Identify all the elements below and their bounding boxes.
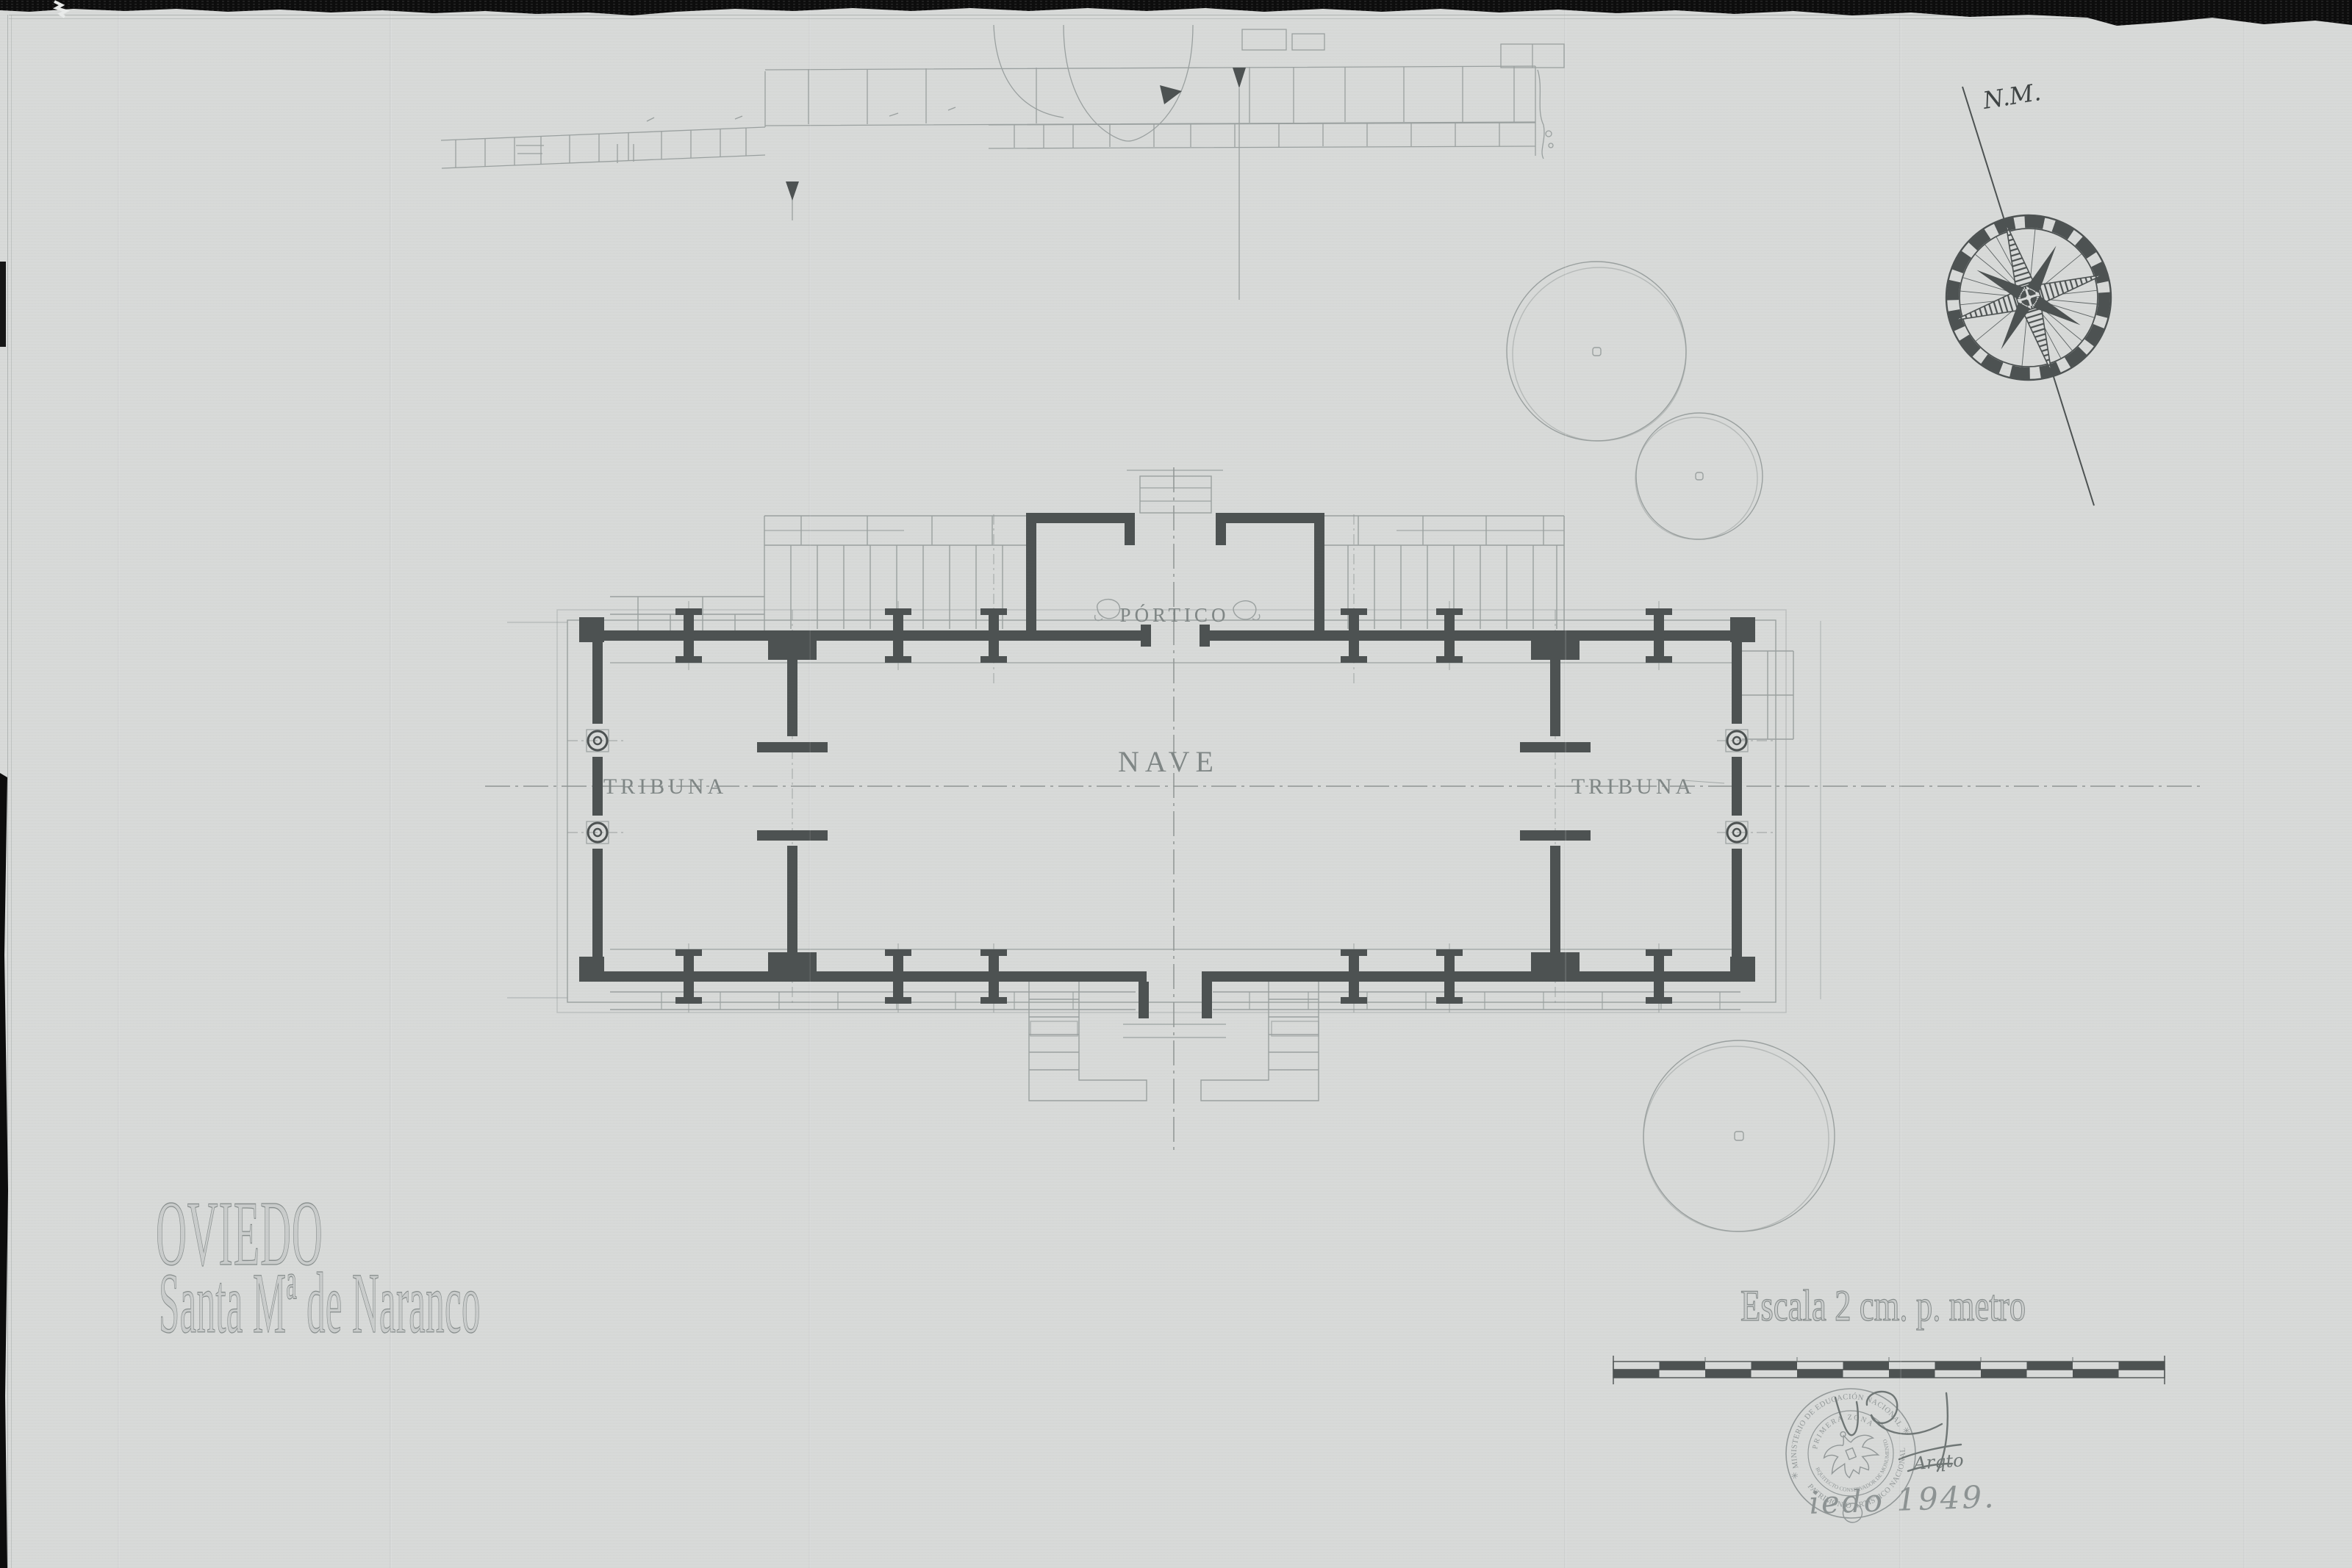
tree-symbol-small [1635,413,1763,539]
tribuna-right-label: TRIBUNA [1571,774,1695,799]
stairs-west [1029,982,1147,1101]
tribuna-left-label: TRIBUNA [603,774,727,799]
signature-place-year: iedo 1949. [1809,1478,1997,1521]
stamp-separator-left: ✳ [1790,1470,1801,1482]
compass-star [1932,201,2126,395]
scale-caption: Escala 2 cm. p. metro [1740,1280,2026,1331]
stamp-separator-right: ✳ [1901,1425,1912,1437]
tree-symbol-large [1507,262,1686,441]
title-monument: Santa Mª de Naranco [159,1254,481,1353]
drawing-sheet: N.M. [0,0,2352,1568]
compass-rose: N.M. [1932,78,2126,506]
scale-bar [1613,1356,2165,1384]
site-wall-sketch [441,25,1564,397]
stairs-east [1201,982,1319,1101]
signature-credential: Arqto [1911,1450,1964,1474]
plan-axes [485,467,2201,1150]
nave-label: NAVE [1118,745,1219,778]
portico-label: PÓRTICO [1120,604,1230,626]
tree-symbol-south [1643,1040,1835,1231]
compass-label: N.M. [1980,78,2043,115]
